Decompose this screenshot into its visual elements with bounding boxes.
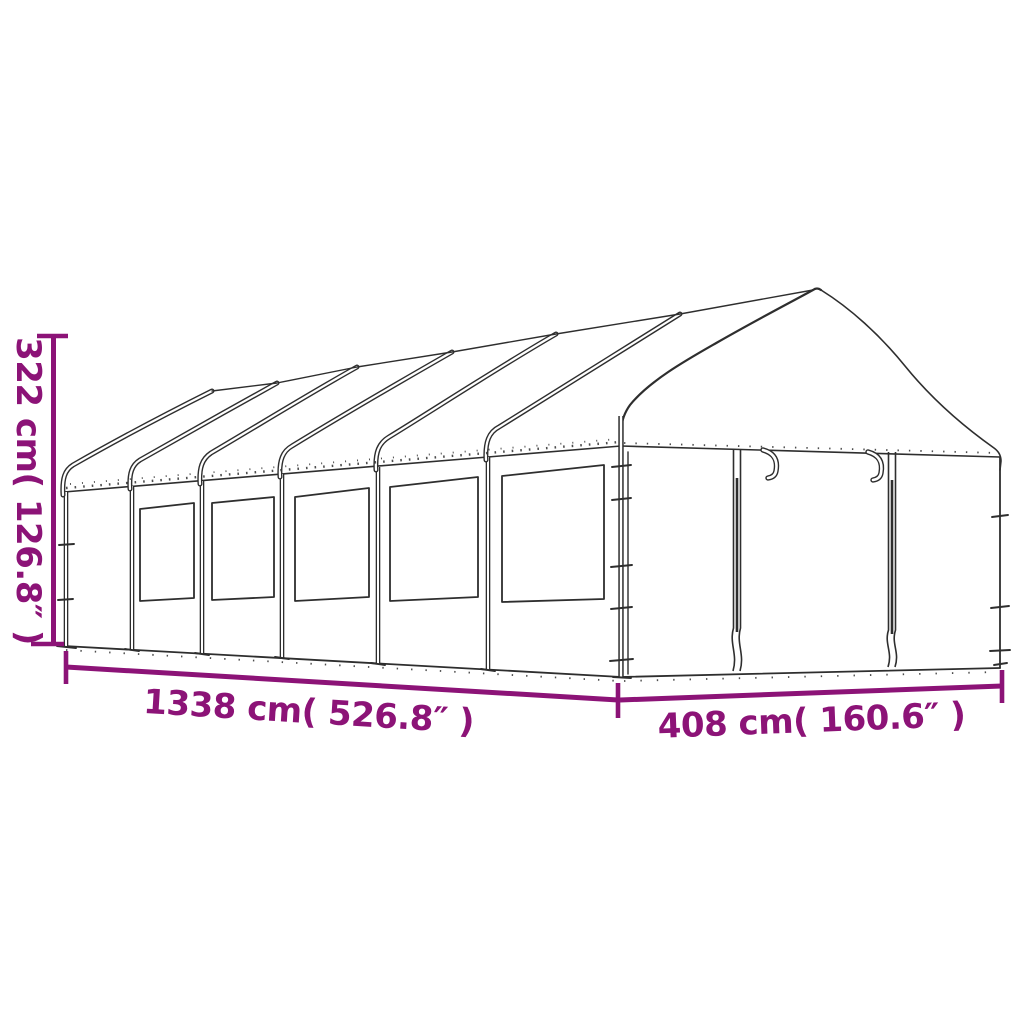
gazebo-line-drawing: 322 cm( 126.8″ ) 1338 cm( 526.8″ ) 408 c… <box>0 0 1024 1024</box>
front-wall-surface <box>621 446 1000 677</box>
roof-rib-1 <box>63 391 212 495</box>
height-dimension: 322 cm( 126.8″ ) <box>8 336 68 645</box>
window-5 <box>390 477 478 601</box>
window-2 <box>140 503 194 601</box>
width-dimension-label: 408 cm( 160.6″ ) <box>657 695 966 747</box>
window-6 <box>502 465 604 602</box>
dimension-diagram-canvas: 322 cm( 126.8″ ) 1338 cm( 526.8″ ) 408 c… <box>0 0 1024 1024</box>
window-4 <box>295 488 369 601</box>
height-dimension-label: 322 cm( 126.8″ ) <box>8 337 48 645</box>
window-3 <box>212 497 274 600</box>
window-1 <box>78 509 126 601</box>
width-dimension: 408 cm( 160.6″ ) <box>620 670 1002 747</box>
